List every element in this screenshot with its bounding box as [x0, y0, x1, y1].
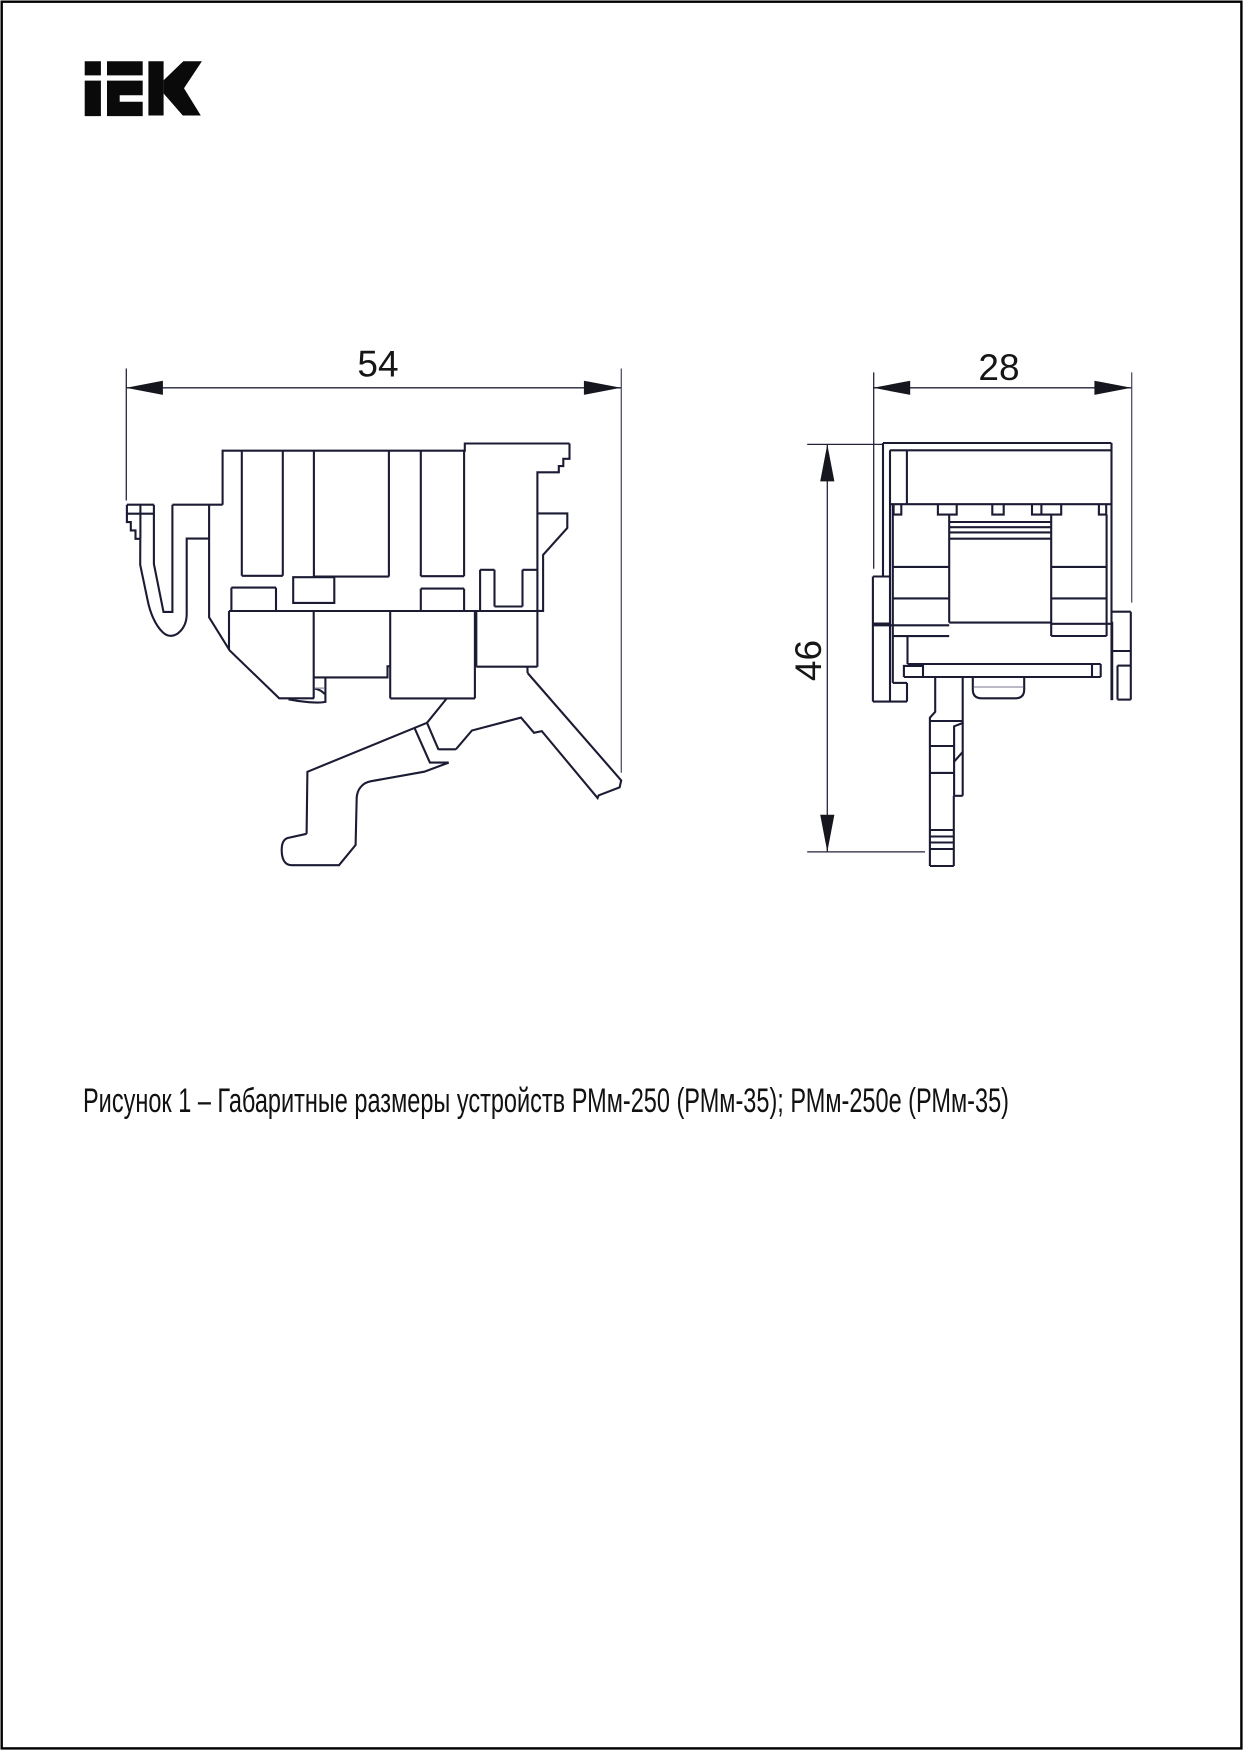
svg-text:54: 54 — [357, 344, 398, 385]
svg-text:Рисунок 1 – Габаритные размеры: Рисунок 1 – Габаритные размеры устройств… — [83, 1082, 1009, 1120]
svg-text:28: 28 — [978, 347, 1019, 388]
svg-text:46: 46 — [788, 640, 829, 681]
